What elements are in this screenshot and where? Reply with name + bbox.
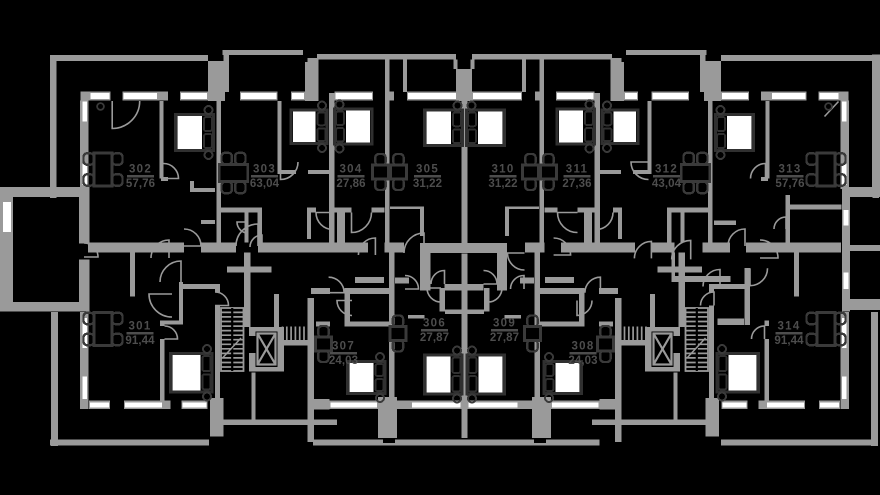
- svg-text:91,44: 91,44: [125, 335, 155, 347]
- svg-text:303: 303: [253, 164, 276, 176]
- svg-text:57,76: 57,76: [126, 178, 155, 190]
- svg-text:57,76: 57,76: [775, 178, 804, 190]
- svg-text:314: 314: [777, 321, 800, 333]
- svg-text:43,04: 43,04: [652, 178, 682, 190]
- svg-text:301: 301: [128, 321, 151, 333]
- svg-text:63,04: 63,04: [250, 178, 280, 190]
- svg-text:31,22: 31,22: [413, 178, 442, 190]
- svg-text:31,22: 31,22: [488, 178, 517, 190]
- svg-text:305: 305: [416, 164, 439, 176]
- svg-text:302: 302: [129, 164, 152, 176]
- svg-text:24,03: 24,03: [329, 355, 358, 367]
- svg-text:306: 306: [423, 318, 446, 330]
- svg-text:312: 312: [655, 164, 678, 176]
- svg-text:27,86: 27,86: [336, 178, 365, 190]
- svg-text:27,87: 27,87: [420, 332, 449, 344]
- svg-text:27,87: 27,87: [490, 332, 519, 344]
- svg-text:310: 310: [491, 164, 514, 176]
- svg-text:309: 309: [493, 318, 516, 330]
- svg-text:308: 308: [571, 341, 594, 353]
- svg-text:24,03: 24,03: [568, 355, 597, 367]
- svg-text:313: 313: [778, 164, 801, 176]
- svg-text:91,44: 91,44: [774, 335, 804, 347]
- svg-text:307: 307: [332, 341, 355, 353]
- svg-text:304: 304: [339, 164, 362, 176]
- svg-text:27,36: 27,36: [562, 178, 591, 190]
- svg-text:311: 311: [566, 164, 588, 176]
